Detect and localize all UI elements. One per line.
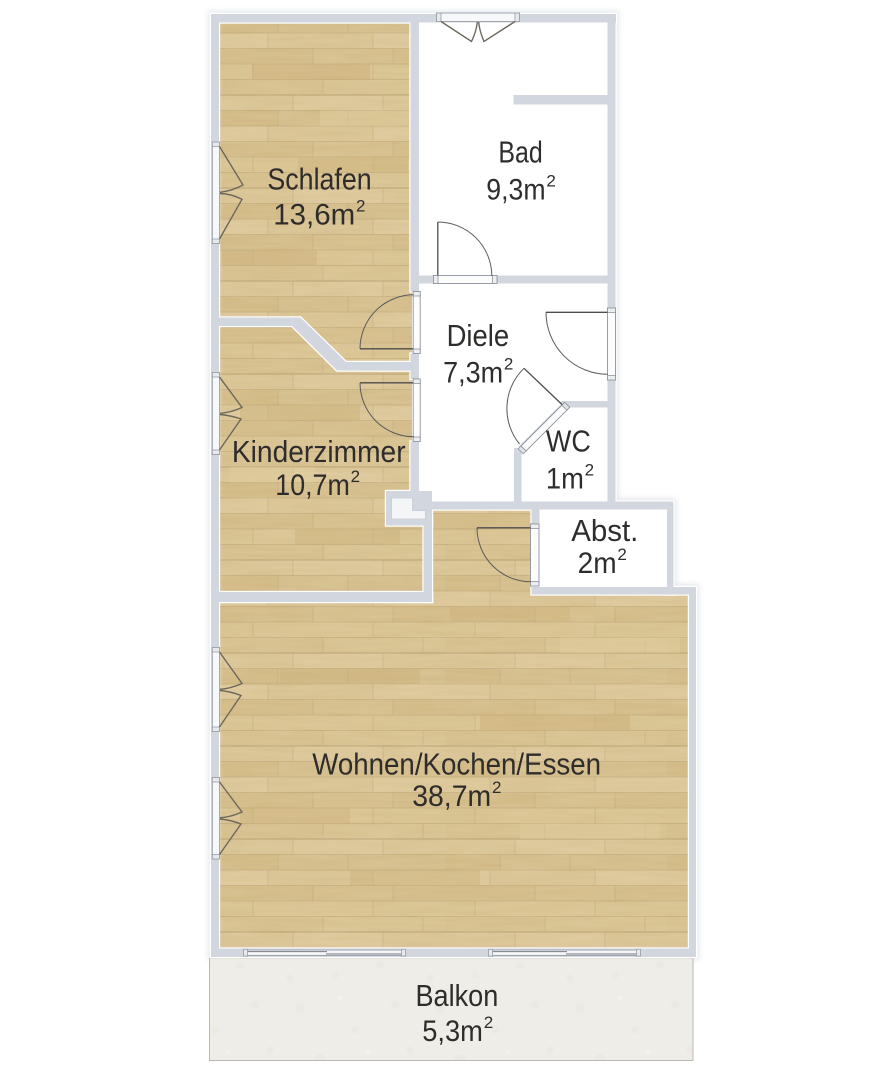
- svg-text:13,6m: 13,6m: [273, 199, 355, 232]
- svg-text:Schlafen: Schlafen: [267, 161, 371, 196]
- svg-text:Balkon: Balkon: [416, 978, 499, 1013]
- svg-text:Abst.: Abst.: [571, 513, 638, 548]
- svg-text:2: 2: [356, 197, 365, 216]
- svg-text:7,3m: 7,3m: [443, 357, 503, 390]
- svg-text:Bad: Bad: [498, 135, 542, 170]
- svg-text:2: 2: [504, 355, 513, 374]
- svg-text:9,3m: 9,3m: [486, 174, 545, 207]
- svg-text:2: 2: [351, 467, 360, 486]
- svg-text:Diele: Diele: [447, 318, 510, 353]
- svg-text:Kinderzimmer: Kinderzimmer: [232, 434, 406, 469]
- svg-text:2m: 2m: [578, 547, 617, 580]
- svg-text:2: 2: [617, 545, 626, 564]
- svg-text:10,7m: 10,7m: [275, 469, 350, 502]
- svg-text:2: 2: [585, 461, 594, 480]
- svg-text:2: 2: [492, 778, 501, 797]
- svg-text:Wohnen/Kochen/Essen: Wohnen/Kochen/Essen: [312, 746, 601, 781]
- svg-text:1m: 1m: [546, 463, 584, 496]
- svg-text:2: 2: [546, 172, 555, 191]
- svg-text:2: 2: [484, 1013, 493, 1032]
- svg-text:5,3m: 5,3m: [422, 1015, 483, 1048]
- svg-text:38,7m: 38,7m: [412, 780, 491, 813]
- svg-text:WC: WC: [546, 424, 591, 459]
